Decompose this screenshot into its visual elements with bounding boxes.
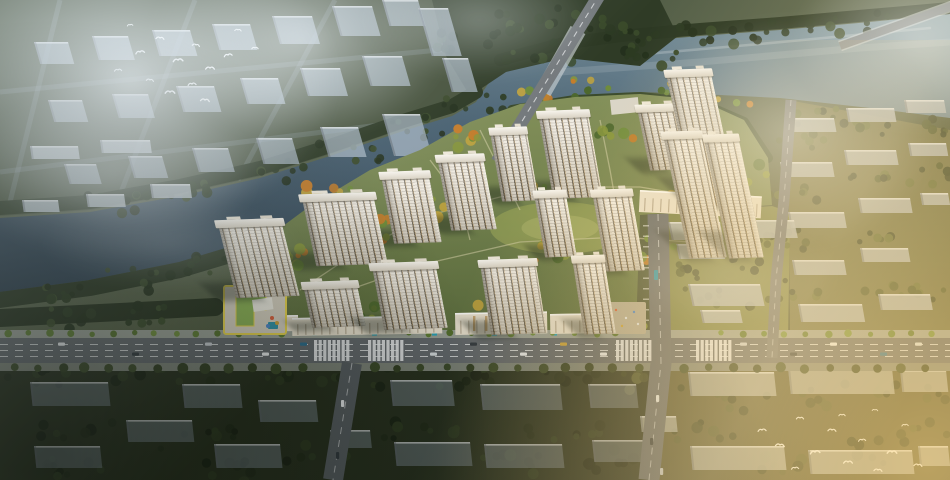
city-slab xyxy=(442,58,478,92)
tree xyxy=(817,397,826,406)
tree xyxy=(631,373,642,384)
slab-shade-edge xyxy=(192,148,201,172)
garden-tree xyxy=(301,180,313,192)
tree xyxy=(309,453,316,460)
tree xyxy=(700,231,709,240)
commercial-podium xyxy=(550,312,642,334)
residential-complex-ground xyxy=(230,94,772,330)
city-street xyxy=(8,0,60,210)
tree xyxy=(504,449,516,461)
tree xyxy=(880,460,886,466)
car xyxy=(915,343,922,346)
crosswalk-stripe xyxy=(323,340,326,361)
slab-shade-edge xyxy=(176,86,185,112)
water-sparkle xyxy=(600,28,930,58)
tree xyxy=(61,368,71,378)
tree xyxy=(292,233,303,244)
mist-cloud xyxy=(0,90,260,260)
tree xyxy=(146,320,152,326)
storefront-mullion xyxy=(261,321,262,331)
slab-roof-edge xyxy=(858,198,910,200)
garden-tree xyxy=(473,300,484,311)
tree xyxy=(676,23,685,32)
tree xyxy=(528,468,539,479)
garden-tree xyxy=(291,259,302,270)
sidewalk xyxy=(0,363,950,371)
slab-body xyxy=(588,384,639,408)
residential-tower xyxy=(666,74,738,206)
tree xyxy=(767,18,776,27)
slab-shade-edge xyxy=(320,127,331,157)
tree xyxy=(744,22,753,31)
tree xyxy=(494,29,501,36)
slab-shade-edge xyxy=(64,164,72,184)
tree xyxy=(354,373,361,380)
tree xyxy=(599,15,607,23)
slab-shade-edge xyxy=(878,294,883,310)
tree xyxy=(245,467,256,478)
slab-body xyxy=(258,400,318,422)
slab-body xyxy=(688,284,765,306)
tree xyxy=(884,234,893,243)
tree xyxy=(595,429,604,438)
tree xyxy=(757,465,766,474)
tree xyxy=(763,232,772,241)
tree xyxy=(208,471,217,480)
slab-roof-edge xyxy=(878,294,930,296)
garden-tree xyxy=(529,182,538,191)
tree xyxy=(795,121,801,127)
tree xyxy=(716,434,724,442)
tree xyxy=(770,462,777,469)
storefront-mullion xyxy=(635,319,636,331)
storefront-mullion xyxy=(425,322,426,333)
tree xyxy=(676,268,685,277)
tree xyxy=(442,102,447,107)
street-tree xyxy=(826,364,834,372)
slab-body xyxy=(908,143,948,156)
tree xyxy=(108,418,117,427)
tree xyxy=(599,21,607,29)
tree xyxy=(709,237,714,242)
tree xyxy=(543,369,550,376)
slab-body xyxy=(792,260,847,275)
tree xyxy=(231,428,238,435)
tree xyxy=(80,428,90,438)
street-tree xyxy=(444,363,451,370)
slab-body xyxy=(182,384,243,408)
garden-tree xyxy=(543,191,551,199)
tower-roof xyxy=(435,153,486,163)
slab-roof-edge xyxy=(688,284,760,286)
mist-cloud xyxy=(640,15,940,250)
tree xyxy=(753,36,762,45)
tower-shadow xyxy=(657,176,723,210)
storefront-mullion xyxy=(484,320,485,333)
entrance-gate-column xyxy=(521,316,523,331)
storefront-mullion xyxy=(748,203,750,216)
garden-tree xyxy=(324,195,336,207)
slab-shade-edge xyxy=(480,384,485,410)
slab-shade-edge xyxy=(788,368,793,394)
mist-cloud xyxy=(360,0,600,80)
city-slab xyxy=(34,42,74,64)
slab-shade-edge xyxy=(258,400,262,422)
tree xyxy=(673,93,680,100)
tree xyxy=(545,20,554,29)
tree xyxy=(888,281,896,289)
tower-roof xyxy=(214,218,285,228)
storefront-mullion xyxy=(668,199,670,212)
tree xyxy=(448,426,460,438)
slab-shade-edge xyxy=(362,56,373,86)
slab-body xyxy=(34,446,102,468)
street-tree xyxy=(507,330,514,337)
garden-tree xyxy=(296,253,301,258)
street-tree xyxy=(67,330,74,337)
tower-shadow xyxy=(350,317,411,334)
slab-body xyxy=(676,244,725,259)
east-slab xyxy=(792,260,847,275)
slab-body xyxy=(858,198,913,213)
tree xyxy=(69,292,75,298)
street-tree xyxy=(800,364,809,373)
street-tree xyxy=(781,331,787,337)
pedestrian xyxy=(637,323,639,325)
tree xyxy=(344,377,352,385)
tree xyxy=(634,30,640,36)
slab-roof-edge xyxy=(382,0,418,2)
tree xyxy=(785,230,791,236)
slab-shade-edge xyxy=(34,446,38,468)
east-slab xyxy=(844,150,899,165)
slab-body xyxy=(690,446,787,470)
slab-roof-edge xyxy=(700,310,740,312)
slab-roof-edge xyxy=(484,444,562,446)
tree xyxy=(664,89,670,95)
tree xyxy=(875,175,883,183)
tree xyxy=(848,175,854,181)
tree xyxy=(256,166,266,176)
tree xyxy=(315,140,324,149)
garden-tree xyxy=(411,202,422,213)
southeast-slab xyxy=(668,222,724,240)
slab-shade-edge xyxy=(858,198,863,213)
commercial-podium xyxy=(639,190,762,218)
tree xyxy=(42,365,51,374)
street-tree xyxy=(79,362,89,372)
tree xyxy=(910,425,917,432)
crosswalk-stripe xyxy=(332,340,335,361)
tree xyxy=(421,113,431,123)
tower-shadow xyxy=(561,319,602,338)
tree xyxy=(784,242,790,248)
tree xyxy=(796,454,807,465)
slab-body xyxy=(92,36,135,60)
garden-tree xyxy=(337,188,344,195)
tree xyxy=(153,270,159,276)
tree xyxy=(747,101,754,108)
slab-shade-edge xyxy=(688,284,695,306)
street-tree xyxy=(393,365,401,373)
garden-path xyxy=(480,130,520,210)
tree xyxy=(620,46,631,57)
crosswalk-stripe xyxy=(368,340,371,361)
tree xyxy=(672,67,680,75)
bridge-parapet xyxy=(543,30,578,92)
tower-facade xyxy=(480,264,547,335)
garden-tree xyxy=(598,315,604,321)
storefront-mullion xyxy=(555,321,556,333)
storefront-mullion xyxy=(603,320,604,332)
car xyxy=(430,353,437,356)
storefront-mullion xyxy=(595,320,596,332)
slab-body xyxy=(256,138,299,164)
tree xyxy=(282,370,294,382)
tree xyxy=(650,96,660,106)
tree xyxy=(470,369,482,381)
tree xyxy=(357,212,368,223)
tree xyxy=(240,462,246,468)
bird-icon xyxy=(156,37,164,39)
tree xyxy=(510,50,515,55)
street-tree xyxy=(177,363,188,374)
tree xyxy=(936,162,943,169)
storefront-mullion xyxy=(524,319,525,332)
tower-shadow xyxy=(423,215,474,234)
garden-tree xyxy=(599,127,608,136)
tower-facade xyxy=(302,198,387,266)
tree xyxy=(133,301,144,312)
tree xyxy=(156,305,162,311)
slab-body xyxy=(214,444,283,468)
street-tree xyxy=(11,363,19,371)
garden-tree xyxy=(738,178,749,189)
tree xyxy=(183,267,192,276)
garden-tree xyxy=(594,131,601,138)
tree xyxy=(571,10,581,20)
bird-icon xyxy=(776,444,785,447)
slab-shade-edge xyxy=(592,440,596,462)
tree xyxy=(688,28,698,38)
slab-roof-edge xyxy=(780,162,832,164)
tree xyxy=(805,137,814,146)
tower-facade xyxy=(438,159,497,231)
forest-belt xyxy=(0,134,492,300)
tree xyxy=(682,97,687,102)
tree xyxy=(86,424,96,434)
street-tree xyxy=(825,331,832,338)
bird-icon xyxy=(188,83,196,86)
terrain-svg xyxy=(0,0,950,480)
tree xyxy=(715,96,721,102)
street-tree xyxy=(530,330,536,336)
tree xyxy=(624,54,629,59)
garden-tree xyxy=(630,302,641,313)
tree xyxy=(671,428,677,434)
podium-parapet xyxy=(240,315,298,318)
tree xyxy=(481,372,489,380)
tree xyxy=(855,123,865,133)
podium-parapet xyxy=(640,190,762,198)
storefront-mullion xyxy=(329,324,330,335)
slab-body xyxy=(900,370,948,392)
slab-body xyxy=(126,420,194,442)
slab-body xyxy=(484,444,565,468)
street-tree xyxy=(729,363,738,372)
bird-icon xyxy=(796,417,803,419)
slab-body xyxy=(100,140,152,153)
storefront-mullion xyxy=(700,201,702,214)
tree xyxy=(898,292,904,298)
tower-shadow xyxy=(200,282,265,302)
slab-roof-edge xyxy=(320,127,358,129)
tree xyxy=(527,431,535,439)
storefront-mullion xyxy=(476,320,477,333)
crosswalk-stripe xyxy=(382,340,385,361)
slab-shade-edge xyxy=(688,372,693,396)
street-tree xyxy=(174,331,180,337)
tree xyxy=(692,269,699,276)
tree xyxy=(374,157,380,163)
tree xyxy=(64,472,70,478)
slab-roof-edge xyxy=(362,56,402,58)
slab-shade-edge xyxy=(34,42,42,64)
southeast-slab xyxy=(744,220,798,238)
tree xyxy=(375,158,381,164)
street-tree xyxy=(278,331,285,338)
garden-tree xyxy=(546,246,552,252)
garden-tree xyxy=(536,200,543,207)
south-slab xyxy=(918,446,950,466)
tree xyxy=(699,38,707,46)
crosswalk-stripe xyxy=(696,340,699,361)
garden-tree xyxy=(517,321,522,326)
garden-tree xyxy=(674,201,679,206)
tree xyxy=(420,134,428,142)
garden-tree xyxy=(368,323,375,330)
crosswalk-stripe xyxy=(705,340,708,361)
tree xyxy=(603,34,611,42)
slab-body xyxy=(152,30,197,56)
tree xyxy=(755,257,764,266)
bird-icon xyxy=(872,409,878,411)
tree xyxy=(869,454,877,462)
garden-tree xyxy=(694,202,701,209)
tree xyxy=(352,157,360,165)
tree xyxy=(880,174,888,182)
tree xyxy=(438,172,443,177)
storefront-mullion xyxy=(652,198,654,211)
garden-tree xyxy=(251,297,261,307)
tower-shadow xyxy=(285,320,334,331)
garden-tree xyxy=(267,295,275,303)
tree xyxy=(221,256,226,261)
garden-tree xyxy=(675,197,684,206)
tower-facade xyxy=(490,132,539,201)
tree xyxy=(863,27,872,36)
south-west-ground xyxy=(0,362,660,480)
east-slab xyxy=(798,304,865,322)
street-tree xyxy=(896,363,906,373)
south-slab xyxy=(808,450,915,474)
storefront-mullion xyxy=(716,202,718,215)
slab-roof-edge xyxy=(150,184,190,186)
street-tree xyxy=(110,330,117,337)
city-district-ground xyxy=(0,0,470,216)
complex-lawn xyxy=(230,94,772,330)
slab-roof-edge xyxy=(64,164,96,166)
tree xyxy=(696,296,704,304)
tree xyxy=(505,26,515,36)
central-lawn xyxy=(522,215,599,241)
tower-shadow xyxy=(656,230,714,262)
tree xyxy=(623,29,628,34)
tree xyxy=(628,453,640,465)
slab-roof-edge xyxy=(86,194,124,196)
tree xyxy=(779,469,785,475)
slab-roof-edge xyxy=(192,148,228,150)
street-tree xyxy=(679,364,688,373)
street-tree xyxy=(128,364,136,372)
street-tree xyxy=(59,363,68,372)
tree xyxy=(271,165,279,173)
street-tree xyxy=(257,330,263,336)
tree xyxy=(265,375,271,381)
tree xyxy=(764,241,771,248)
tree xyxy=(404,129,410,135)
garden-tree xyxy=(281,287,292,298)
garden-tree xyxy=(379,220,387,228)
city-blocks xyxy=(22,0,950,474)
crosswalk-stripe xyxy=(648,340,651,361)
city-slab xyxy=(128,156,168,178)
tree xyxy=(750,266,759,275)
slab-shade-edge xyxy=(382,0,391,26)
water-sparkle xyxy=(560,42,950,72)
tower-roof xyxy=(300,280,360,290)
slab-shade-edge xyxy=(152,30,161,56)
tower-roof xyxy=(532,189,568,198)
street-tree xyxy=(468,330,474,336)
garden-tree xyxy=(270,254,278,262)
mist-cloud xyxy=(790,0,950,130)
tree xyxy=(830,115,835,120)
tree xyxy=(768,232,776,240)
garden-tree xyxy=(603,126,612,135)
garden-tree xyxy=(718,173,728,183)
slab-roof-edge xyxy=(908,143,946,145)
tree xyxy=(635,38,640,43)
tree xyxy=(784,229,792,237)
tree xyxy=(47,319,56,328)
podium-parapet xyxy=(292,315,442,319)
street-tree xyxy=(908,330,914,336)
aerial-render xyxy=(0,0,950,480)
tree xyxy=(650,32,656,38)
slab-body xyxy=(592,440,648,462)
bird-icon xyxy=(874,469,882,471)
tree xyxy=(861,287,870,296)
slab-roof-edge xyxy=(48,100,82,102)
tree xyxy=(76,284,83,291)
tree xyxy=(133,191,140,198)
crosswalk-stripe xyxy=(616,340,619,361)
tree xyxy=(517,88,526,97)
tree xyxy=(800,183,809,192)
street-tree xyxy=(4,330,12,338)
tree xyxy=(566,57,576,67)
